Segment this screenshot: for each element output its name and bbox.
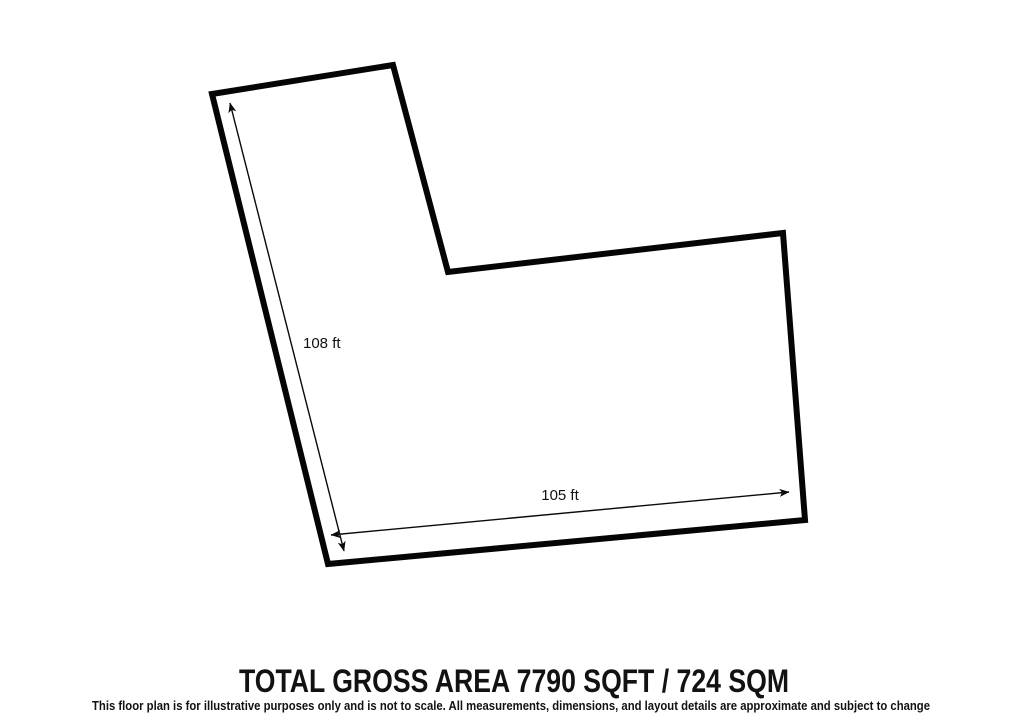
horizontal-dimension-label: 105 ft (541, 487, 579, 504)
vertical-dimension-label: 108 ft (303, 335, 341, 352)
floor-plan-canvas: 108 ft 105 ft TOTAL GROSS AREA 7790 SQFT… (0, 0, 1024, 724)
property-outline (212, 65, 805, 564)
total-area-title: TOTAL GROSS AREA 7790 SQFT / 724 SQM (239, 663, 789, 699)
floor-plan-page: 108 ft 105 ft TOTAL GROSS AREA 7790 SQFT… (0, 0, 1024, 724)
disclaimer-text: This floor plan is for illustrative purp… (92, 698, 930, 713)
